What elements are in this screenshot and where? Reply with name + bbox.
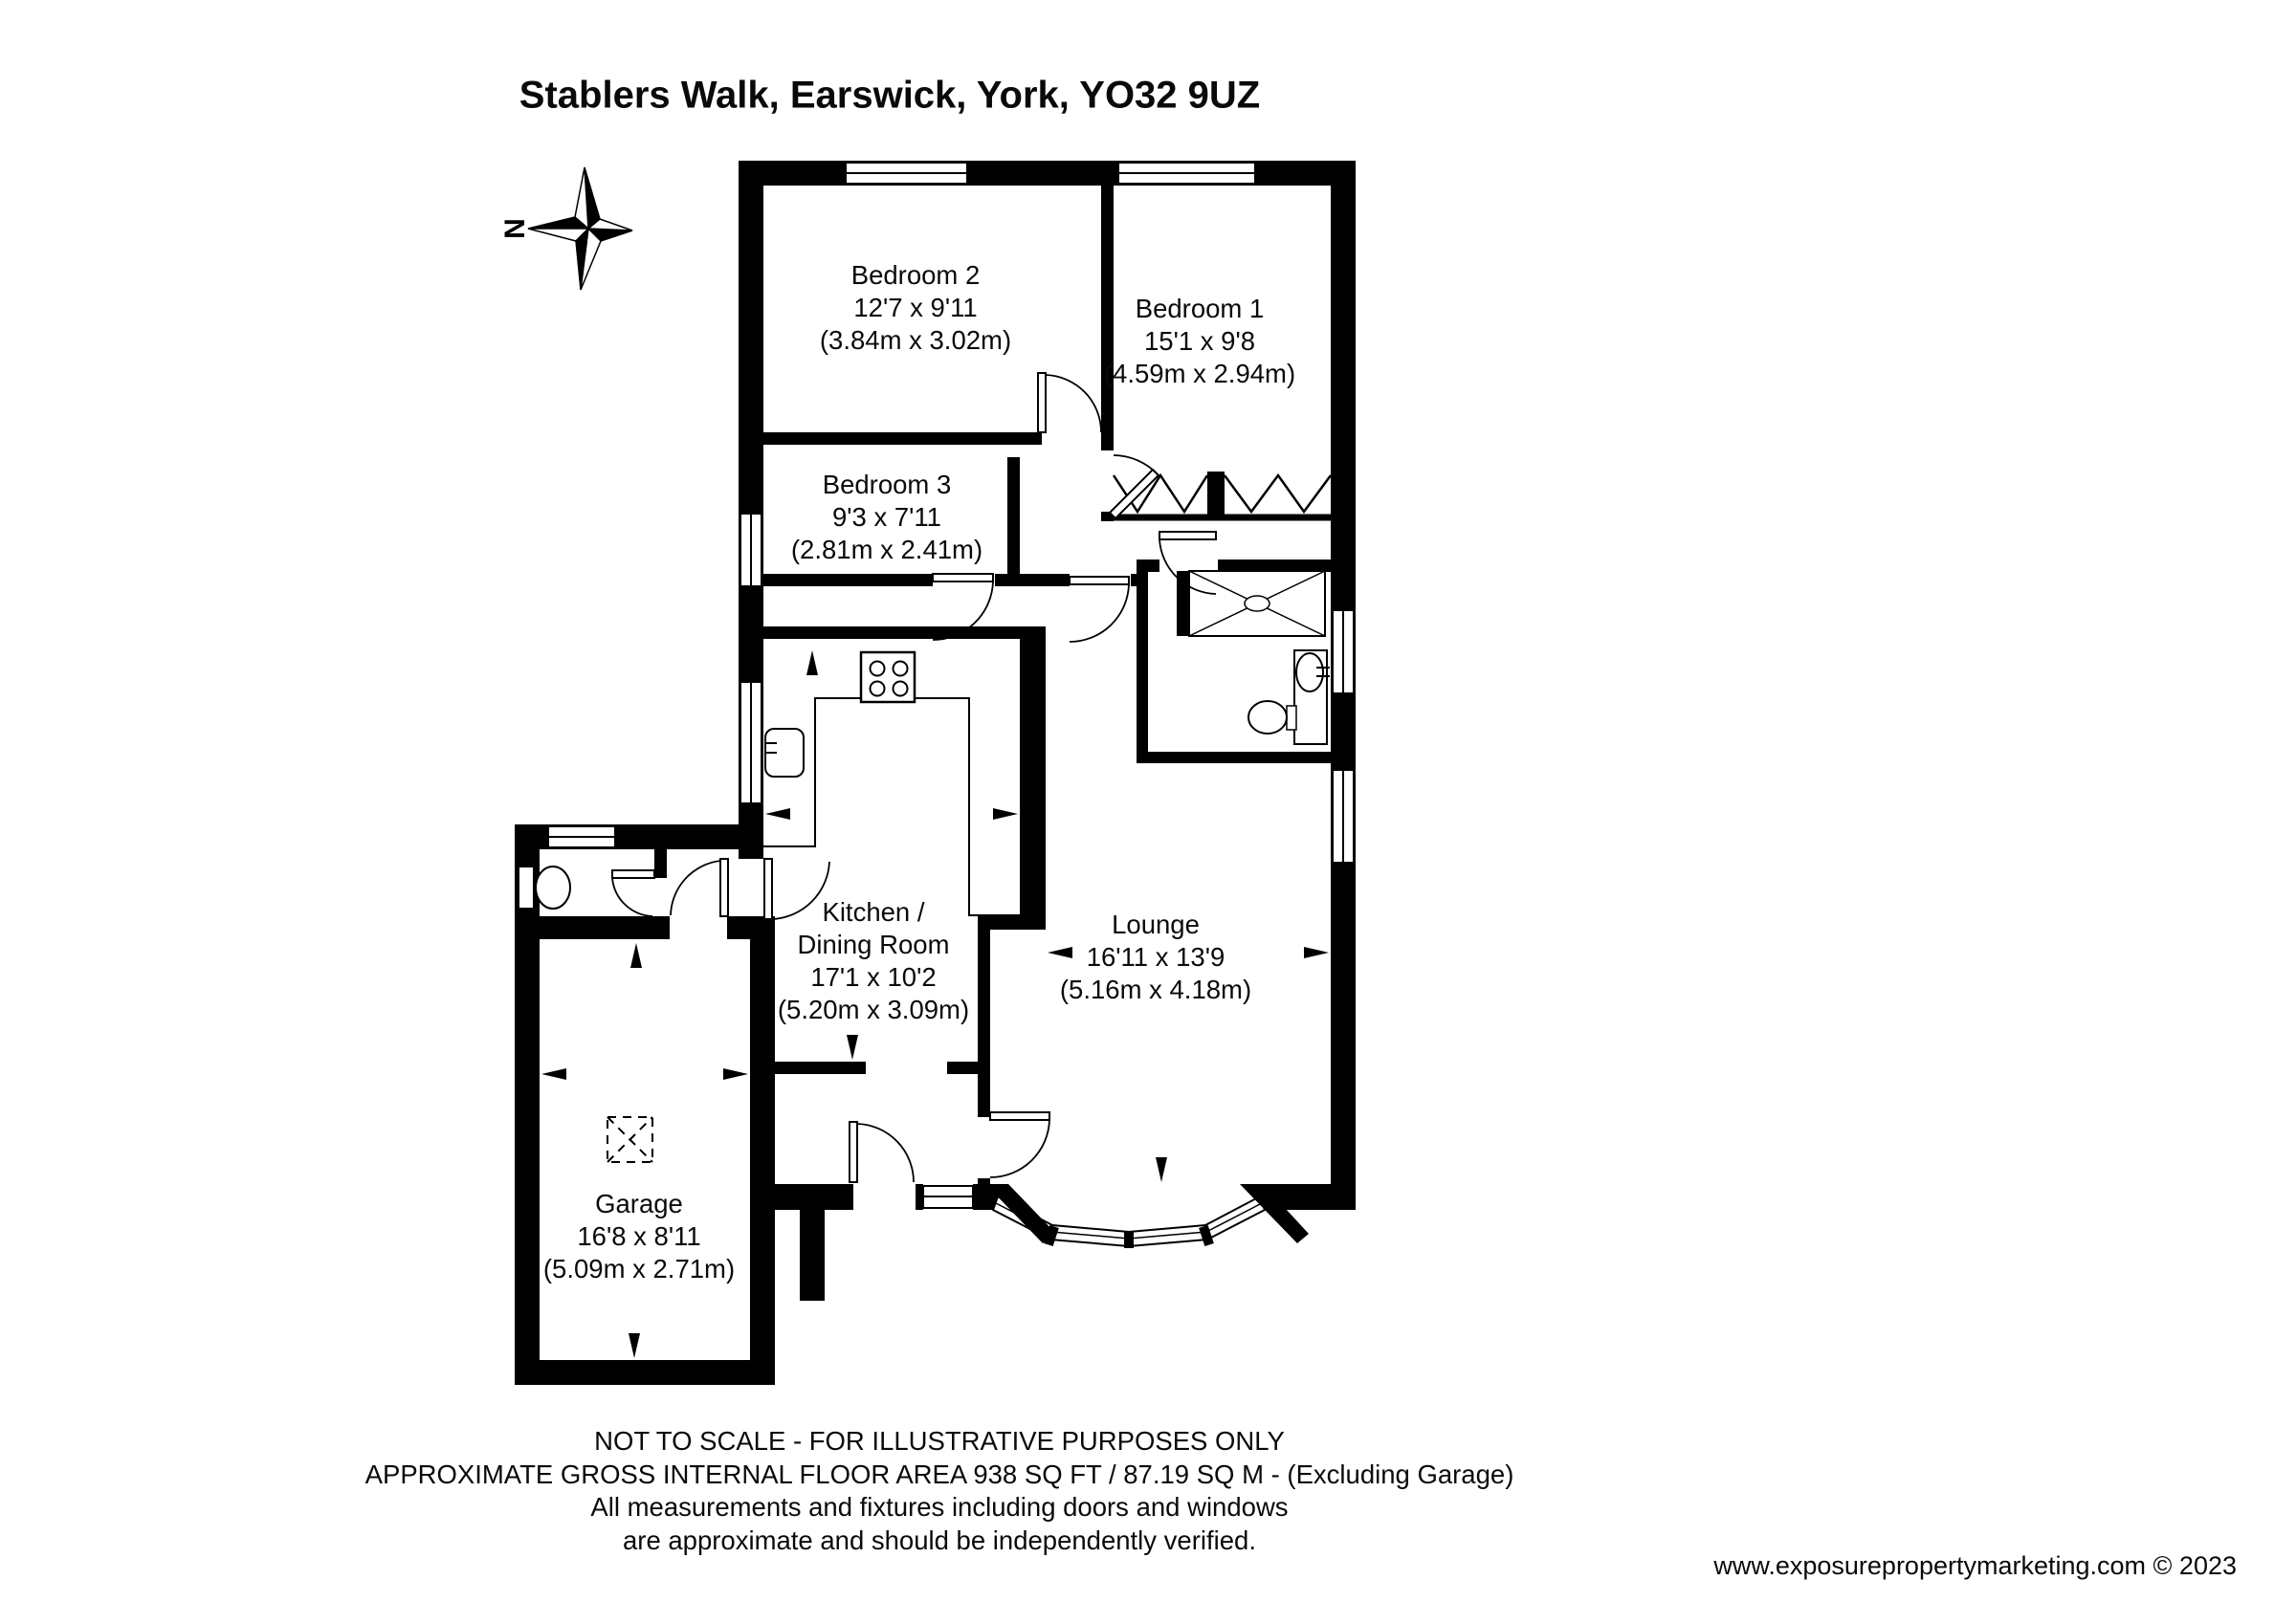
window-wc-top — [548, 826, 615, 847]
room-size-imperial: 17'1 x 10'2 — [778, 961, 969, 994]
bay-window — [985, 1184, 1309, 1248]
window-hall-front — [923, 1186, 973, 1208]
room-label-lounge: Lounge 16'11 x 13'9 (5.16m x 4.18m) — [1060, 909, 1251, 1006]
door-inner-hall — [1070, 577, 1129, 642]
shower-icon — [1189, 571, 1325, 636]
door-front-entrance — [850, 1122, 914, 1182]
room-size-metric: (4.59m x 2.94m) — [1104, 358, 1295, 390]
basin-icon — [1294, 650, 1330, 744]
room-size-metric: (2.81m x 2.41m) — [791, 534, 982, 566]
window-bedroom1-top — [1118, 163, 1255, 184]
room-name: Bedroom 1 — [1104, 293, 1295, 325]
door-bedroom1 — [1110, 455, 1159, 518]
room-name: Bedroom 3 — [791, 469, 982, 501]
window-bedroom2-top — [846, 163, 967, 184]
door-hall-lounge — [990, 1112, 1049, 1177]
room-label-bedroom-1: Bedroom 1 15'1 x 9'8 (4.59m x 2.94m) — [1104, 293, 1295, 390]
door-bedroom2 — [1038, 373, 1101, 432]
disclaimer: NOT TO SCALE - FOR ILLUSTRATIVE PURPOSES… — [365, 1425, 1514, 1557]
room-size-imperial: 16'11 x 13'9 — [1060, 941, 1251, 974]
floorplan-page: { "title": "Stablers Walk, Earswick, Yor… — [0, 0, 2296, 1624]
room-size-metric: (5.09m x 2.71m) — [543, 1253, 735, 1285]
copyright-notice: www.exposurepropertymarketing.com © 2023 — [1713, 1551, 2237, 1581]
room-name: Lounge — [1060, 909, 1251, 941]
room-label-bedroom-3: Bedroom 3 9'3 x 7'11 (2.81m x 2.41m) — [791, 469, 982, 566]
door-wc — [612, 870, 654, 916]
disclaimer-line-4: are approximate and should be independen… — [365, 1525, 1514, 1558]
room-name: Garage — [543, 1188, 735, 1220]
room-label-garage: Garage 16'8 x 8'11 (5.09m x 2.71m) — [543, 1188, 735, 1285]
room-name: Kitchen / — [778, 896, 969, 929]
room-size-imperial: 9'3 x 7'11 — [791, 501, 982, 534]
room-label-bedroom-2: Bedroom 2 12'7 x 9'11 (3.84m x 3.02m) — [820, 259, 1011, 357]
window-bathroom-right — [1333, 610, 1354, 693]
sink-icon — [765, 729, 804, 777]
window-bedroom3-left — [740, 514, 762, 586]
hob-icon — [861, 652, 915, 702]
room-size-imperial: 12'7 x 9'11 — [820, 292, 1011, 324]
disclaimer-line-1: NOT TO SCALE - FOR ILLUSTRATIVE PURPOSES… — [365, 1425, 1514, 1459]
room-size-imperial: 16'8 x 8'11 — [543, 1220, 735, 1253]
room-size-metric: (5.20m x 3.09m) — [778, 994, 969, 1026]
disclaimer-line-2: APPROXIMATE GROSS INTERNAL FLOOR AREA 93… — [365, 1459, 1514, 1492]
room-name-line2: Dining Room — [778, 929, 969, 961]
room-size-metric: (3.84m x 3.02m) — [820, 324, 1011, 357]
room-label-kitchen-dining: Kitchen / Dining Room 17'1 x 10'2 (5.20m… — [778, 896, 969, 1026]
room-size-imperial: 15'1 x 9'8 — [1104, 325, 1295, 358]
floor-plan: N — [0, 0, 2296, 1624]
door-garage-hall — [671, 859, 728, 916]
compass-north-label: N — [499, 218, 531, 239]
window-lounge-right — [1333, 770, 1354, 863]
toilet-wc-icon — [519, 867, 570, 909]
disclaimer-line-3: All measurements and fixtures including … — [365, 1491, 1514, 1525]
toilet-bathroom-icon — [1248, 701, 1296, 734]
page-title: Stablers Walk, Earswick, York, YO32 9UZ — [519, 75, 1260, 118]
room-name: Bedroom 2 — [820, 259, 1011, 292]
kitchen-counter — [763, 698, 1020, 915]
window-kitchen-left — [740, 682, 762, 803]
compass-icon: N — [499, 167, 632, 290]
room-size-metric: (5.16m x 4.18m) — [1060, 974, 1251, 1006]
garage-roof-light-icon — [607, 1117, 652, 1162]
